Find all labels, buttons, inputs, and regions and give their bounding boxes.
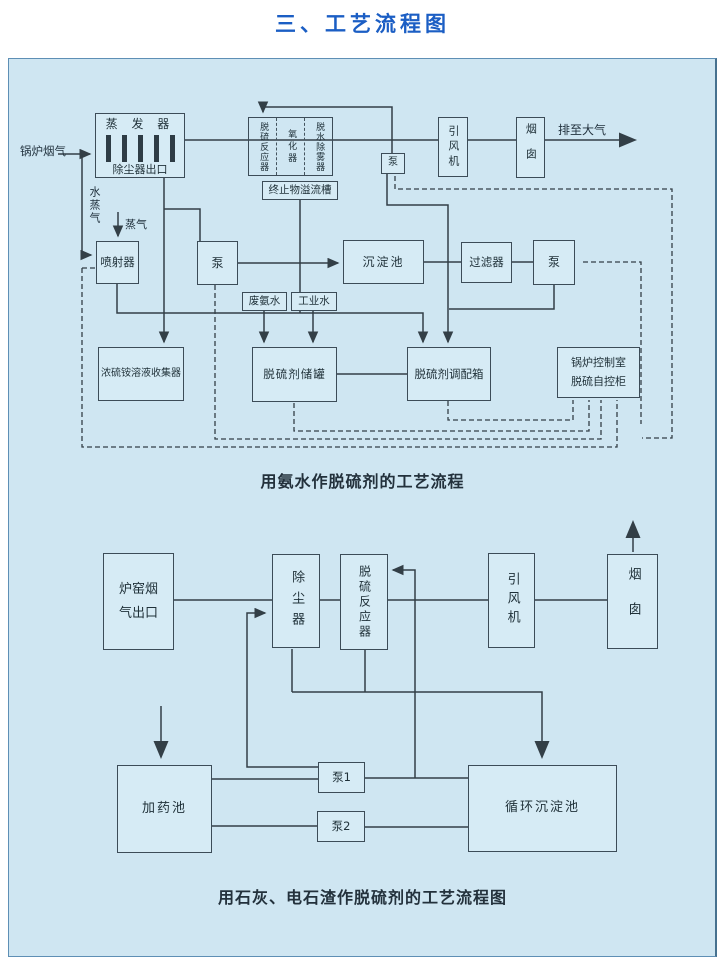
furnace-outlet-label: 炉窑烟气出口 (116, 578, 162, 625)
desulfurizer-storage-box: 脱硫剂储罐 (252, 347, 337, 402)
induced-fan-label-2: 引风机 (503, 572, 519, 629)
control-room-line1: 锅炉控制室 (571, 354, 626, 373)
pump1-box: 泵1 (318, 762, 365, 793)
evaporator-tube-bars (106, 134, 175, 162)
demister-label: 脱水除雾器 (313, 122, 324, 172)
furnace-outlet-box: 炉窑烟气出口 (103, 553, 174, 650)
dust-collector-box-2: 除尘器 (272, 554, 320, 648)
ejector-box: 喷射器 (96, 241, 139, 284)
settling-tank-box: 沉淀池 (343, 240, 424, 284)
desulfur-reactor-label: 脱硫反应器 (257, 122, 268, 172)
filter-box: 过滤器 (461, 242, 512, 283)
control-room-line2: 脱硫自控柜 (571, 373, 626, 392)
diagram1-caption: 用氨水作脱硫剂的工艺流程 (0, 468, 725, 492)
control-room-box: 锅炉控制室 脱硫自控柜 (557, 347, 640, 398)
evaporator-box: 蒸 发 器 除尘器出口 (95, 113, 185, 178)
chimney-label-1: 烟囱 (524, 123, 538, 173)
chimney-box-2: 烟囱 (607, 554, 658, 649)
reactor-group-box: 脱硫反应器 氧化器 脱水除雾器 (248, 117, 333, 176)
dust-collector-label-2: 除尘器 (288, 570, 304, 633)
reactor-label-2: 脱硫反应器 (357, 565, 372, 640)
recirculation-pump-box: 泵 (381, 153, 405, 174)
circulation-tank-box: 循环沉淀池 (468, 765, 617, 852)
pump2-box: 泵2 (317, 811, 365, 842)
process-flow-page: 三、工艺流程图 (0, 0, 725, 964)
chimney-label-2: 烟囱 (624, 567, 640, 637)
induced-fan-box-2: 引风机 (488, 553, 535, 648)
induced-fan-box-1: 引风机 (438, 117, 468, 177)
induced-fan-label-1: 引风机 (446, 125, 460, 170)
ammonium-sulfate-collector-box: 浓硫铵溶液收集器 (98, 347, 184, 401)
boiler-flue-gas-label: 锅炉烟气 (20, 143, 66, 159)
oxidizer-label: 氧化器 (285, 129, 296, 165)
dust-outlet-label: 除尘器出口 (113, 163, 168, 177)
reactor-box-2: 脱硫反应器 (340, 554, 388, 650)
diagram2-caption: 用石灰、电石渣作脱硫剂的工艺流程图 (0, 884, 725, 908)
industrial-water-box: 工业水 (291, 292, 337, 311)
pump-right-box: 泵 (533, 240, 575, 285)
desulfurizer-mixing-box: 脱硫剂调配箱 (407, 347, 491, 401)
waste-ammonia-box: 废氨水 (242, 292, 287, 311)
overflow-trough-box: 终止物溢流槽 (262, 181, 338, 200)
to-atmosphere-label: 排至大气 (558, 121, 606, 138)
pump-mid-box: 泵 (197, 241, 238, 285)
water-vapor-label: 水蒸气 (86, 186, 102, 225)
steam-label: 蒸气 (125, 216, 147, 232)
page-title: 三、工艺流程图 (0, 8, 725, 38)
chimney-box-1: 烟囱 (516, 117, 545, 178)
evaporator-label: 蒸 发 器 (106, 117, 175, 132)
dosing-pool-box: 加药池 (117, 765, 212, 853)
